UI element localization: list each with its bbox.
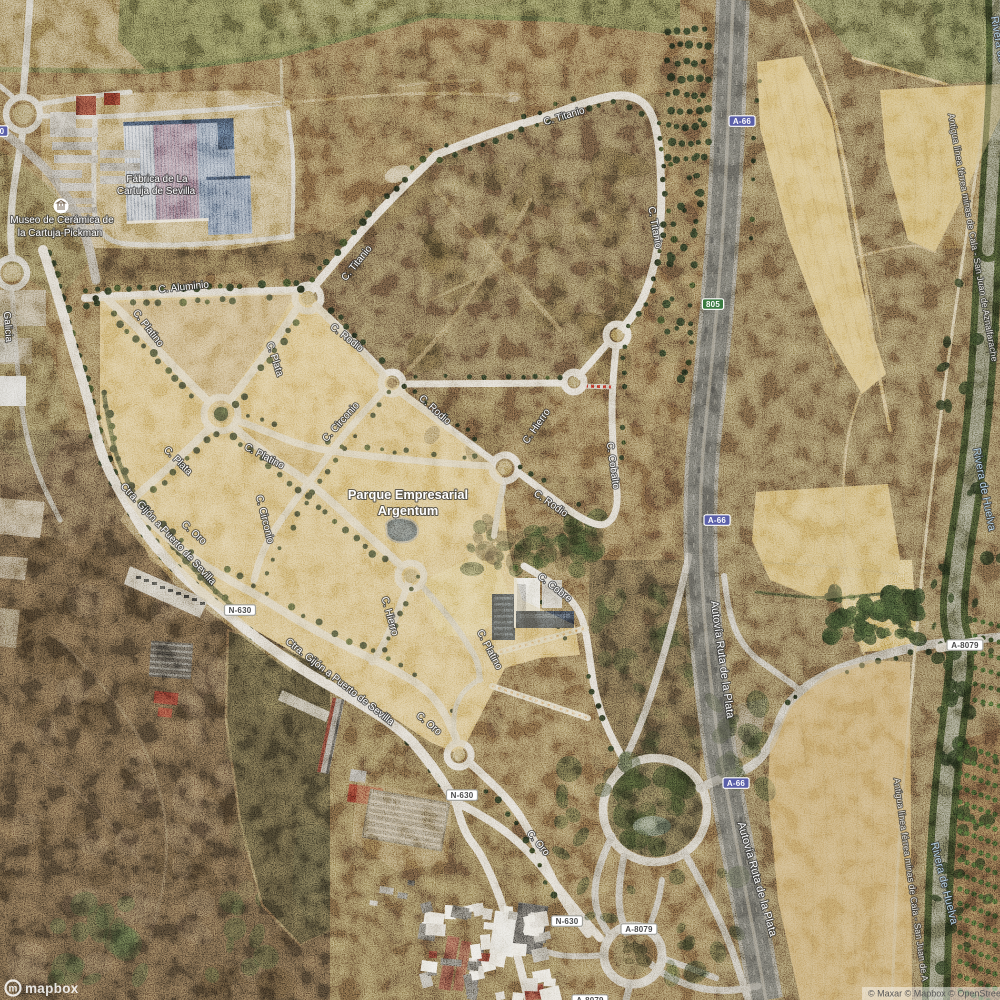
svg-text:A-66: A-66 <box>733 117 751 126</box>
svg-text:Fábrica de La: Fábrica de La <box>126 174 188 185</box>
svg-text:Museo de Cerámica de: Museo de Cerámica de <box>10 215 114 226</box>
svg-text:Argentum: Argentum <box>378 503 438 518</box>
svg-text:Galicia: Galicia <box>1 311 14 343</box>
svg-text:A-66: A-66 <box>727 779 745 788</box>
svg-text:805: 805 <box>706 300 720 309</box>
svg-text:N-630: N-630 <box>556 917 579 926</box>
svg-text:N-630: N-630 <box>229 606 252 615</box>
svg-text:A-66: A-66 <box>708 516 726 525</box>
svg-text:mapbox: mapbox <box>25 981 79 996</box>
svg-text:m: m <box>9 984 18 995</box>
svg-text:A-8079: A-8079 <box>625 925 653 934</box>
svg-text:A-8079: A-8079 <box>951 641 979 650</box>
svg-text:0: 0 <box>0 127 5 136</box>
svg-text:la Cartuja-Pickman: la Cartuja-Pickman <box>18 228 102 239</box>
svg-text:© Maxar © Mapbox © OpenStreetM: © Maxar © Mapbox © OpenStreetMap Improve… <box>868 989 1000 999</box>
svg-text:Cartuja de Sevilla: Cartuja de Sevilla <box>117 186 196 197</box>
svg-text:Parque Empresarial: Parque Empresarial <box>348 487 468 502</box>
svg-text:A-8079: A-8079 <box>576 996 604 1000</box>
svg-text:N-630: N-630 <box>451 791 474 800</box>
